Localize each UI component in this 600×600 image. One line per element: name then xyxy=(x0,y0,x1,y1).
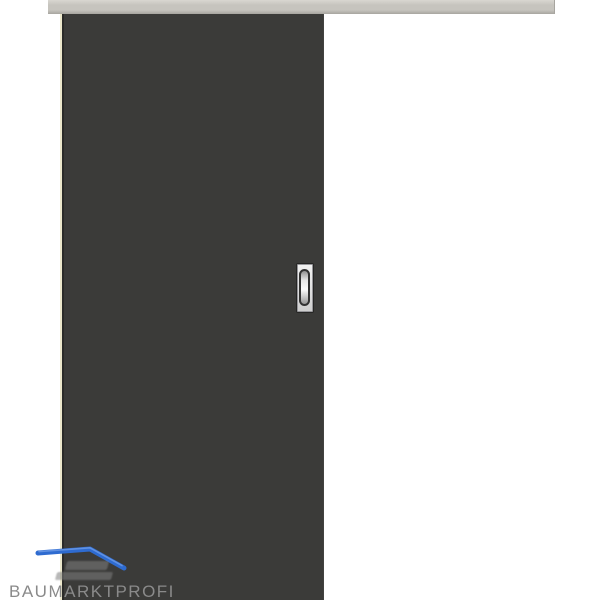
product-photo: BAUMARKTPROFI xyxy=(0,0,600,600)
sliding-door-rail xyxy=(48,0,555,14)
door-panel xyxy=(60,13,324,600)
handle-recess xyxy=(299,269,310,306)
flush-pull-handle xyxy=(297,264,313,312)
